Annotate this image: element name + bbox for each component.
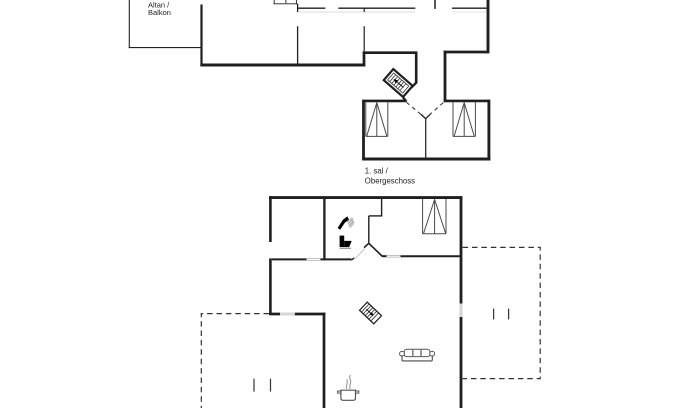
svg-text:Obergeschoss: Obergeschoss (365, 177, 415, 186)
svg-text:Balkon: Balkon (148, 8, 171, 17)
svg-text:1. sal /: 1. sal / (365, 167, 389, 176)
